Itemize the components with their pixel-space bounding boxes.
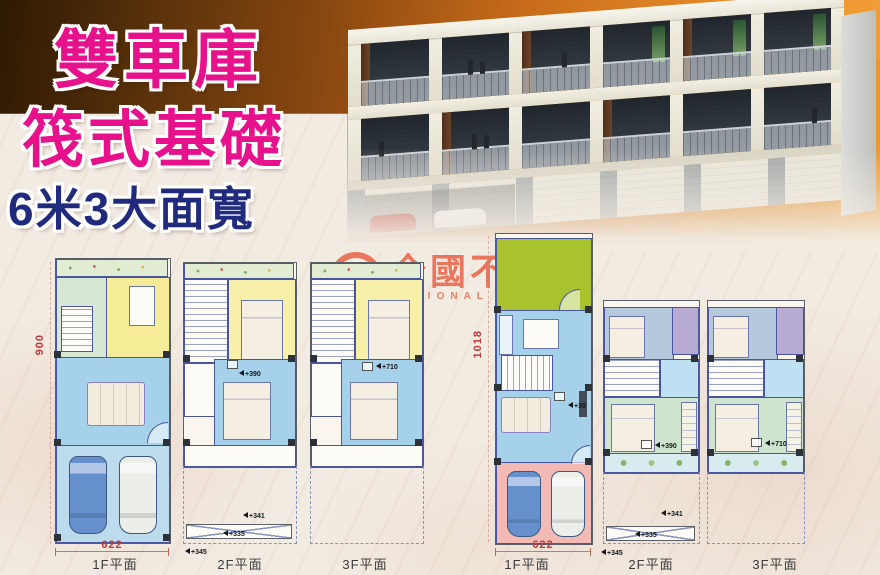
open-terrace xyxy=(707,472,805,544)
column xyxy=(603,355,610,362)
wardrobe xyxy=(681,402,697,452)
built-area xyxy=(183,262,297,468)
column xyxy=(415,439,422,446)
building-pier xyxy=(429,38,442,101)
open-terrace xyxy=(310,466,424,544)
column xyxy=(288,355,295,362)
column xyxy=(415,355,422,362)
stair-landing xyxy=(764,359,804,399)
marker: +335 xyxy=(635,531,657,539)
dim-line xyxy=(495,551,591,552)
dim-right-width: 622 xyxy=(495,539,591,551)
column xyxy=(585,306,592,313)
balcony-opening xyxy=(361,39,429,106)
marker: +390 xyxy=(655,442,677,450)
column xyxy=(54,351,61,358)
planter-strip xyxy=(311,263,421,279)
column xyxy=(796,449,803,456)
headline-double-garage: 雙車庫 xyxy=(54,28,264,92)
bedroom-top xyxy=(708,307,778,361)
bedroom-blue xyxy=(341,359,423,447)
sofa xyxy=(501,397,551,433)
balcony-railing xyxy=(522,63,590,93)
stairs xyxy=(501,355,553,391)
bedroom-top xyxy=(604,307,674,361)
column xyxy=(310,355,317,362)
marker: +390 xyxy=(239,370,261,378)
balcony-opening xyxy=(603,20,671,87)
front-yard xyxy=(496,238,592,312)
column xyxy=(183,439,190,446)
level-tag-icon xyxy=(751,438,762,447)
marker: +341 xyxy=(661,510,683,518)
plan-label-right-1f: 1F平面 xyxy=(482,554,572,573)
column xyxy=(691,449,698,456)
balcony-planter xyxy=(604,453,699,473)
marker: +30 xyxy=(568,402,586,410)
built-area xyxy=(707,300,805,474)
balcony-opening xyxy=(683,14,751,81)
garage xyxy=(56,445,170,543)
balcony xyxy=(184,445,296,467)
stairs xyxy=(311,279,355,363)
white-car-icon xyxy=(551,471,585,537)
building-pier xyxy=(670,19,683,82)
plan-label-right-2f: 2F平面 xyxy=(606,554,696,573)
column xyxy=(163,439,170,446)
column xyxy=(54,439,61,446)
wardrobe xyxy=(786,402,802,452)
column xyxy=(183,355,190,362)
level-tag-icon xyxy=(554,392,565,401)
building-pier xyxy=(751,13,764,76)
balcony-railing xyxy=(764,45,832,75)
level-tag-icon xyxy=(641,440,652,449)
bed xyxy=(223,382,271,440)
column xyxy=(691,355,698,362)
bed xyxy=(241,300,283,360)
bathroom xyxy=(672,307,699,355)
person-figure xyxy=(468,59,473,74)
living-dining xyxy=(496,310,592,464)
planter-strip xyxy=(56,259,168,277)
stair-landing xyxy=(660,359,699,399)
person-figure xyxy=(812,108,817,123)
balcony-opening xyxy=(522,26,590,93)
bed xyxy=(350,382,398,440)
garage xyxy=(496,462,592,544)
floorplan-right-1f: +30 xyxy=(495,233,593,545)
kitchen-counter xyxy=(499,315,513,355)
stairs xyxy=(184,279,228,363)
column xyxy=(707,355,714,362)
dining-table xyxy=(129,286,155,326)
bed xyxy=(609,316,645,358)
plan-label-left-3f: 3F平面 xyxy=(320,554,410,573)
balcony-railing xyxy=(361,76,429,106)
building-pier xyxy=(751,88,764,151)
balcony-railing xyxy=(683,51,751,81)
balcony-opening xyxy=(683,89,751,156)
dim-left-height: 900 xyxy=(34,334,46,355)
balcony-railing xyxy=(442,70,510,100)
dim-left-width: 622 xyxy=(55,539,169,551)
dim-guide xyxy=(50,262,51,544)
sofa xyxy=(87,382,145,426)
column xyxy=(707,449,714,456)
bed xyxy=(368,300,410,360)
plan-label-left-2f: 2F平面 xyxy=(195,554,285,573)
level-tag-icon xyxy=(362,362,373,371)
column xyxy=(585,458,592,465)
entry-room xyxy=(56,277,108,359)
floorplan-right-3f: +710 xyxy=(707,300,803,543)
person-figure xyxy=(562,52,567,67)
bathroom xyxy=(311,363,343,417)
balcony-opening xyxy=(764,83,832,150)
balcony-railing xyxy=(764,120,832,150)
stairs xyxy=(61,306,93,352)
marker: +335 xyxy=(223,530,245,538)
person-figure xyxy=(480,61,485,73)
dining-table xyxy=(523,319,559,349)
balcony-planter xyxy=(708,453,804,473)
blue-car-icon xyxy=(69,456,107,534)
dim-line xyxy=(55,551,169,552)
door-arc xyxy=(559,289,580,310)
real-estate-ad: 雙車庫 筏式基礎 6米3大面寬 R 全國不動產 NATIONAL REALTY xyxy=(0,0,880,575)
floorplan-left-1f xyxy=(55,258,171,544)
bathroom xyxy=(776,307,804,355)
blue-car-icon xyxy=(507,471,541,537)
building-pier xyxy=(509,32,522,95)
column xyxy=(603,449,610,456)
bathroom xyxy=(184,363,216,417)
balcony-opening xyxy=(764,8,832,75)
column xyxy=(288,439,295,446)
headline-frontage: 6米3大面寬 xyxy=(8,186,255,232)
column xyxy=(494,384,501,391)
dim-guide xyxy=(488,236,489,542)
stairs xyxy=(708,359,764,397)
marker: +341 xyxy=(243,512,265,520)
marker: +710 xyxy=(765,440,787,448)
building-bottom-fade xyxy=(335,148,880,252)
column xyxy=(494,458,501,465)
headline-raft-foundation: 筏式基礎 xyxy=(22,110,286,172)
column xyxy=(796,355,803,362)
balcony xyxy=(311,445,423,467)
building-pier xyxy=(348,44,361,107)
white-car-icon xyxy=(119,456,157,534)
planter-strip xyxy=(184,263,294,279)
bed xyxy=(713,316,749,358)
column xyxy=(585,384,592,391)
floorplan-left-3f: +710 xyxy=(310,262,422,543)
stairs xyxy=(604,359,660,397)
living-room xyxy=(56,357,170,447)
floorplan-left-2f: +390 +341 +335 +345 xyxy=(183,262,295,543)
column xyxy=(163,351,170,358)
column xyxy=(310,439,317,446)
plan-label-left-1f: 1F平面 xyxy=(70,554,160,573)
dim-right-height: 1018 xyxy=(472,330,484,358)
person-figure xyxy=(484,135,489,148)
level-tag-icon xyxy=(227,360,238,369)
column xyxy=(494,306,501,313)
kitchen-dining xyxy=(106,277,170,359)
building-pier xyxy=(590,25,603,88)
marker: +710 xyxy=(376,363,398,371)
floorplan-right-2f: +390 +341 +335 +345 xyxy=(603,300,698,543)
balcony-railing xyxy=(603,57,671,87)
plan-label-right-3f: 3F平面 xyxy=(730,554,820,573)
balcony-opening xyxy=(442,33,510,100)
